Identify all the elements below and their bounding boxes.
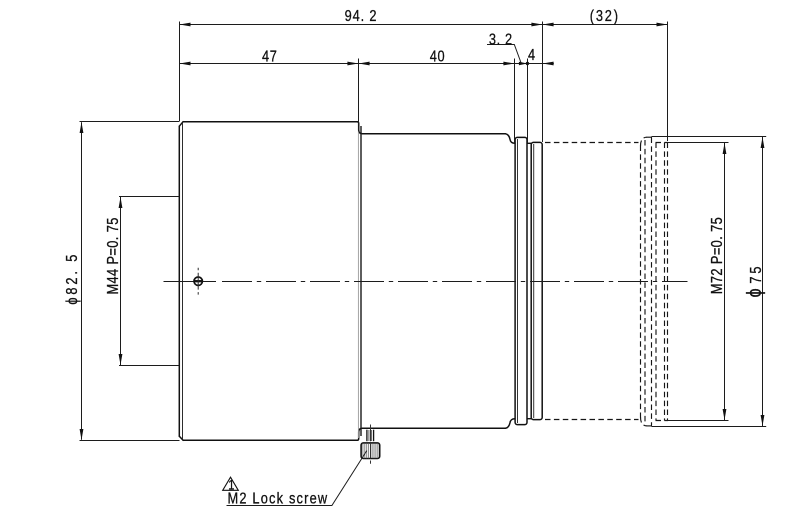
svg-text:M2 Lock screw: M2 Lock screw bbox=[228, 490, 329, 508]
svg-text:3. 2: 3. 2 bbox=[489, 31, 513, 49]
svg-text:(32): (32) bbox=[590, 8, 620, 26]
svg-text:M72 P=0. 75: M72 P=0. 75 bbox=[709, 217, 727, 294]
svg-text:1: 1 bbox=[228, 478, 234, 493]
svg-text:M44 P=0. 75: M44 P=0. 75 bbox=[105, 217, 123, 294]
svg-text:47: 47 bbox=[262, 48, 278, 66]
svg-text:4: 4 bbox=[528, 47, 535, 65]
svg-text:94. 2: 94. 2 bbox=[345, 8, 378, 26]
svg-text:40: 40 bbox=[430, 48, 446, 66]
svg-text:ϕ82. 5: ϕ82. 5 bbox=[64, 252, 82, 305]
